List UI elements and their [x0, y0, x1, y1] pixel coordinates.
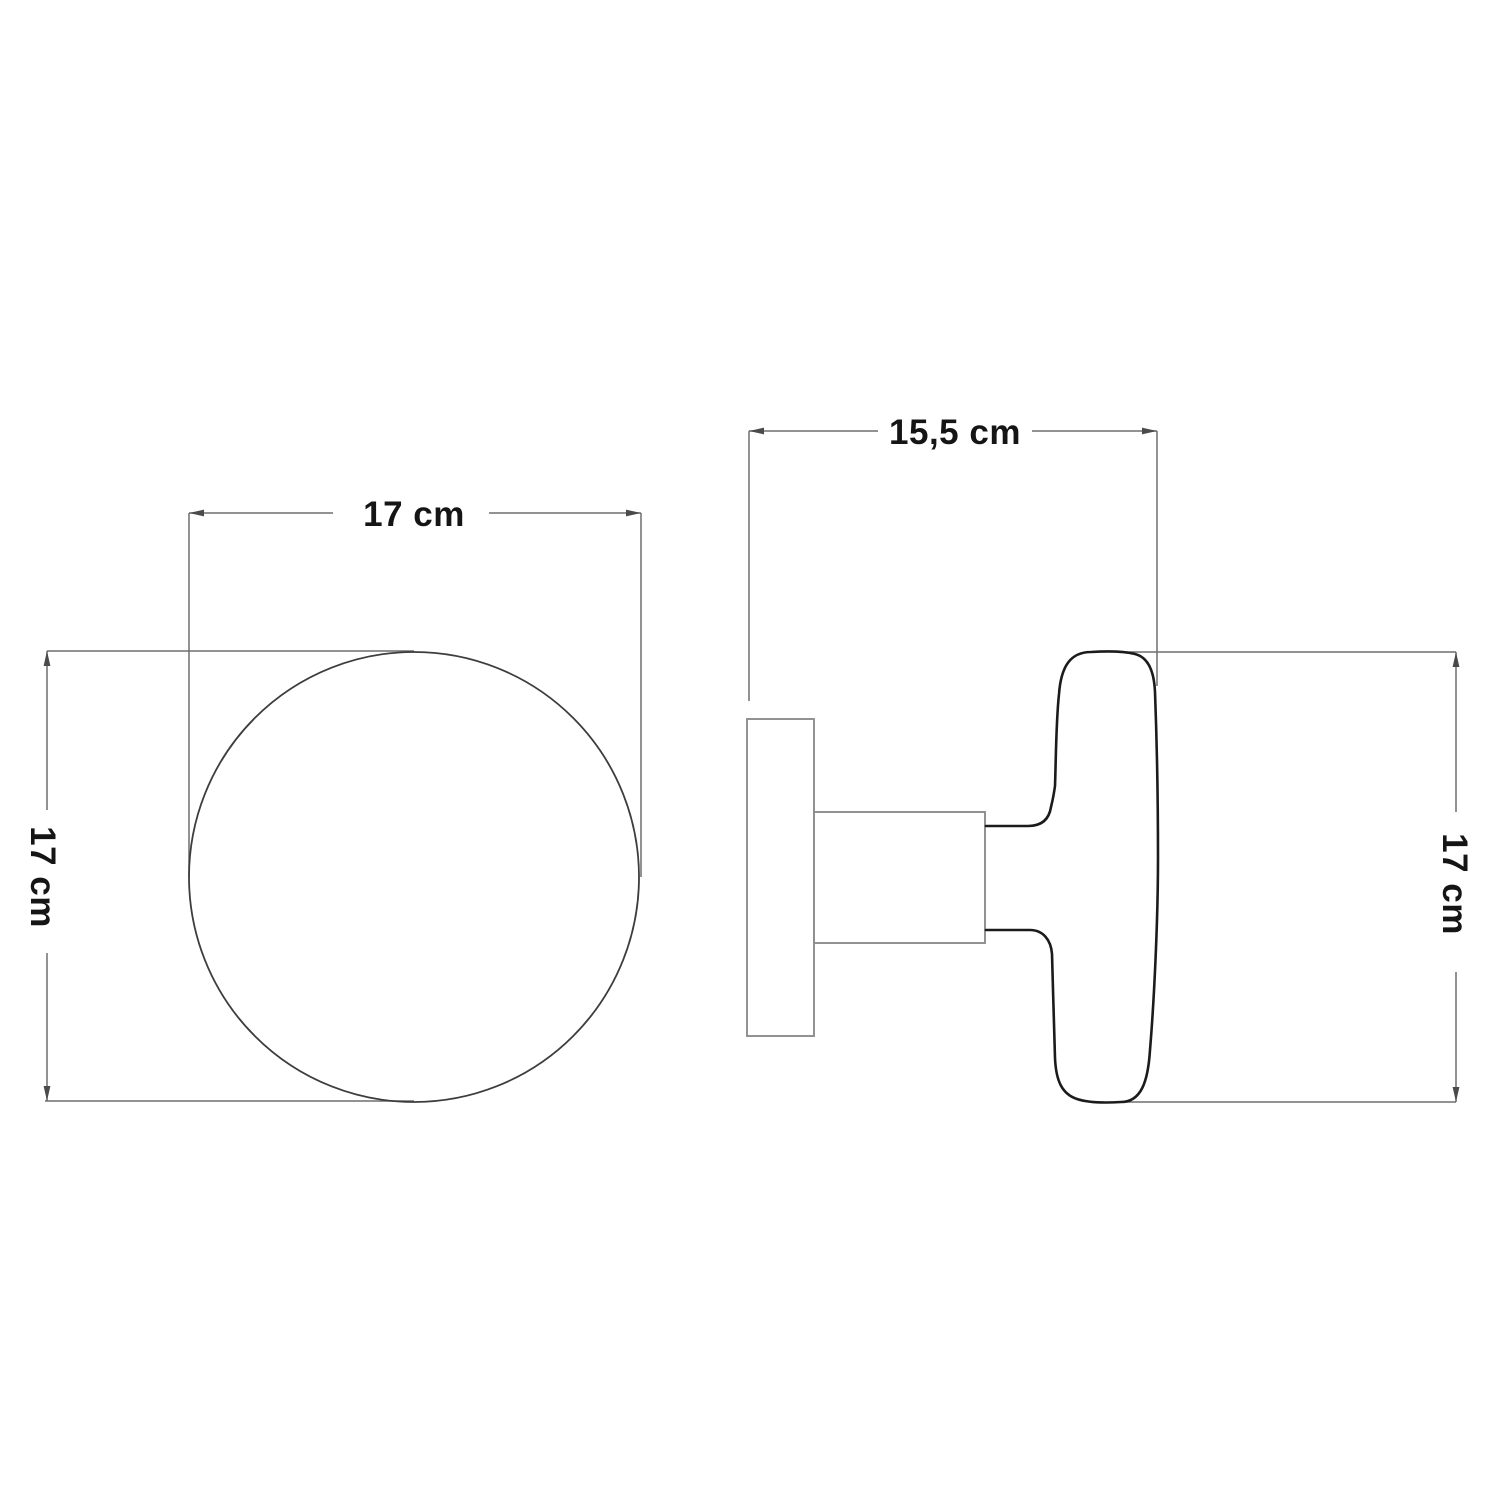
- knob-side-outline: [986, 651, 1158, 1102]
- technical-drawing-page: 17 cm 17 cm: [0, 0, 1500, 1500]
- arrow-up-icon: [44, 651, 51, 666]
- arrow-down-icon: [44, 1086, 51, 1101]
- wall-plate-side-outline: [747, 719, 814, 1036]
- stem-side-outline: [814, 812, 985, 943]
- side-depth-label: 15,5 cm: [889, 413, 1021, 452]
- front-width-dimension: 17 cm: [189, 495, 641, 877]
- arrow-left-icon: [749, 428, 764, 435]
- front-height-dimension: 17 cm: [23, 651, 414, 1101]
- front-height-label: 17 cm: [23, 826, 62, 928]
- arrow-right-icon: [1142, 428, 1157, 435]
- knob-dimension-drawing: 17 cm 17 cm: [0, 0, 1500, 1500]
- arrow-down-icon: [1453, 1087, 1460, 1102]
- front-width-label: 17 cm: [363, 495, 465, 534]
- side-depth-dimension: 15,5 cm: [749, 413, 1157, 701]
- side-view: 15,5 cm 17 cm: [747, 413, 1474, 1103]
- side-height-label: 17 cm: [1435, 833, 1474, 935]
- knob-front-outline: [189, 652, 639, 1102]
- arrow-left-icon: [189, 510, 204, 517]
- arrow-up-icon: [1453, 652, 1460, 667]
- arrow-right-icon: [626, 510, 641, 517]
- front-view: 17 cm 17 cm: [23, 495, 641, 1102]
- side-height-dimension: 17 cm: [1123, 652, 1474, 1102]
